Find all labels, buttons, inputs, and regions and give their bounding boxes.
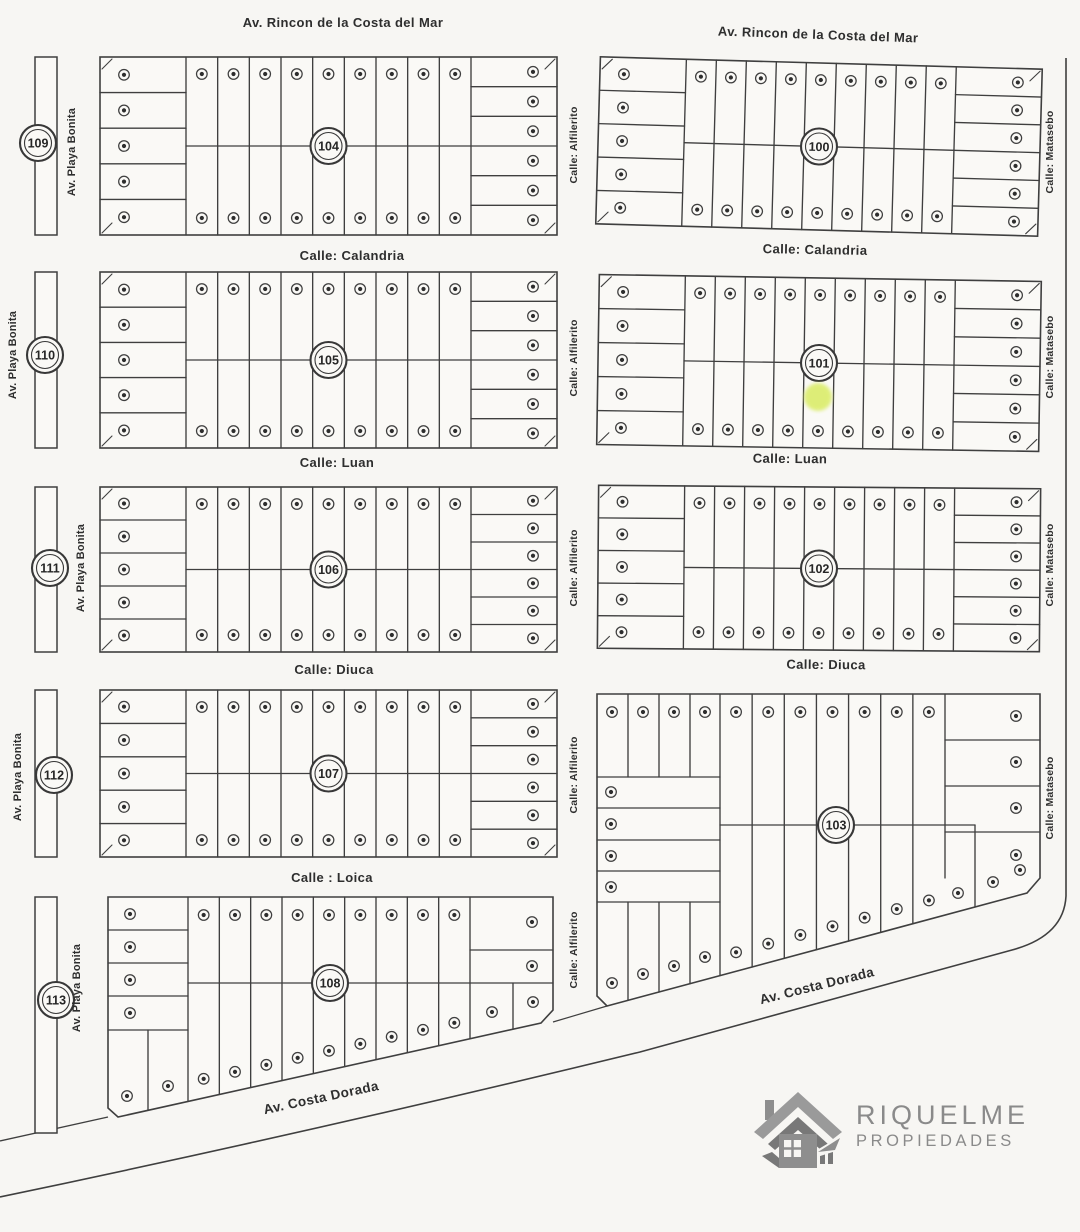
lot-marker-dot: [122, 180, 126, 184]
block-103: 103: [597, 694, 1040, 1006]
lot-marker-dot: [734, 710, 738, 714]
lot-marker-dot: [609, 822, 613, 826]
highlighted-lot: [804, 383, 832, 411]
house-icon: [752, 1080, 844, 1172]
lot-marker-dot: [122, 323, 126, 327]
lot-marker-dot: [296, 1056, 300, 1060]
lot-marker-dot: [122, 771, 126, 775]
lot-marker-dot: [531, 402, 535, 406]
lot-marker-dot: [231, 838, 235, 842]
street-label-luan-right: Calle: Luan: [753, 451, 828, 467]
lot-marker-dot: [200, 705, 204, 709]
lot-marker-dot: [233, 1070, 237, 1074]
plat-map-page: 1091101111121131041051061071001011021081…: [0, 0, 1080, 1232]
lot-marker-dot: [1014, 714, 1018, 718]
block-number: 101: [808, 356, 829, 370]
lot-marker-dot: [734, 950, 738, 954]
lot-marker-dot: [122, 534, 126, 538]
lot-marker-dot: [295, 72, 299, 76]
lot-marker-dot: [703, 955, 707, 959]
lot-marker-dot: [453, 287, 457, 291]
lot-marker-dot: [697, 501, 701, 505]
block-outline: [597, 694, 1040, 1006]
lot-marker-dot: [531, 314, 535, 318]
lot-marker-dot: [609, 854, 613, 858]
lot-marker-dot: [787, 502, 791, 506]
lot-marker-dot: [327, 1049, 331, 1053]
lot-marker-dot: [453, 502, 457, 506]
lot-marker-dot: [264, 1063, 268, 1067]
lot-marker-dot: [756, 630, 760, 634]
lot-marker-dot: [390, 705, 394, 709]
lot-marker-dot: [122, 805, 126, 809]
street-label-luan-left: Calle: Luan: [300, 455, 374, 470]
street-label-matasebo-1: Calle: Matasebo: [1044, 111, 1056, 194]
lot-line: [954, 542, 1040, 543]
strip-block-113: 113: [35, 897, 74, 1133]
lot-marker-dot: [390, 502, 394, 506]
street-label-alfilerito-4: Calle: Alfilerito: [568, 736, 580, 813]
lot-marker-dot: [295, 502, 299, 506]
strip-block-112: 112: [35, 690, 72, 857]
lot-marker-dot: [122, 215, 126, 219]
lot-marker-dot: [876, 631, 880, 635]
lot-marker-dot: [453, 429, 457, 433]
lot-marker-dot: [122, 73, 126, 77]
lot-marker-dot: [122, 838, 126, 842]
road-edge-inner-gap: [553, 1006, 607, 1022]
street-label-diuca-left: Calle: Diuca: [294, 662, 374, 677]
lot-marker-dot: [1014, 582, 1018, 586]
lot-marker-dot: [531, 841, 535, 845]
block-101: 101: [597, 275, 1042, 452]
lot-marker-dot: [927, 710, 931, 714]
lot-marker-dot: [358, 705, 362, 709]
block-number: 102: [809, 562, 830, 576]
lot-marker-dot: [726, 630, 730, 634]
lot-marker-dot: [263, 705, 267, 709]
lot-marker-dot: [200, 287, 204, 291]
lot-marker-dot: [122, 393, 126, 397]
lot-marker-dot: [531, 373, 535, 377]
lot-marker-dot: [326, 633, 330, 637]
lot-marker-dot: [390, 1035, 394, 1039]
street-label-alfilerito-1: Calle: Alfilerito: [568, 106, 580, 183]
lot-marker-dot: [609, 790, 613, 794]
lot-marker-dot: [327, 913, 331, 917]
lot-marker-dot: [620, 565, 624, 569]
lot-marker-dot: [531, 343, 535, 347]
lot-marker-dot: [295, 287, 299, 291]
lot-marker-dot: [200, 502, 204, 506]
lot-marker-dot: [390, 838, 394, 842]
lot-marker-dot: [531, 702, 535, 706]
lot-marker-dot: [122, 428, 126, 432]
street-label-playa-bonita-2: Av. Playa Bonita: [7, 310, 19, 399]
lot-marker-dot: [877, 502, 881, 506]
lot-marker-dot: [326, 705, 330, 709]
lot-marker-dot: [202, 1077, 206, 1081]
lot-line: [598, 518, 684, 519]
lot-marker-dot: [128, 1011, 132, 1015]
lot-marker-dot: [531, 99, 535, 103]
lot-line: [954, 624, 1040, 625]
lot-marker-dot: [490, 1010, 494, 1014]
lot-marker-dot: [358, 838, 362, 842]
lot-marker-dot: [295, 216, 299, 220]
street-label-matasebo-4: Calle: Matasebo: [1044, 757, 1056, 840]
lot-marker-dot: [122, 705, 126, 709]
block-108: 108: [108, 897, 553, 1117]
block-number: 107: [318, 767, 339, 781]
block-number: 109: [28, 137, 49, 151]
block-number: 103: [826, 819, 847, 833]
lot-marker-dot: [798, 710, 802, 714]
lot-marker-dot: [421, 429, 425, 433]
lot-marker-dot: [672, 964, 676, 968]
street-label-costa-dorada-left: Av. Costa Dorada: [262, 1078, 380, 1117]
lot-marker-dot: [263, 429, 267, 433]
lot-marker-dot: [530, 964, 534, 968]
lot-marker-dot: [727, 501, 731, 505]
lot-marker-dot: [122, 567, 126, 571]
lot-marker-dot: [263, 287, 267, 291]
lot-marker-dot: [757, 501, 761, 505]
lot-marker-dot: [830, 710, 834, 714]
street-label-alfilerito-2: Calle: Alfilerito: [568, 319, 580, 396]
lot-marker-dot: [830, 924, 834, 928]
lot-marker-dot: [295, 633, 299, 637]
lot-marker-dot: [200, 633, 204, 637]
lot-marker-dot: [766, 942, 770, 946]
lot-marker-dot: [390, 429, 394, 433]
lot-marker-dot: [453, 633, 457, 637]
lot-marker-dot: [421, 502, 425, 506]
lot-marker-dot: [122, 633, 126, 637]
lot-marker-dot: [672, 710, 676, 714]
lot-marker-dot: [390, 913, 394, 917]
lot-marker-dot: [531, 188, 535, 192]
lot-marker-dot: [452, 1021, 456, 1025]
lot-marker-dot: [390, 72, 394, 76]
lot-marker-dot: [641, 710, 645, 714]
street-label-playa-bonita-5: Av. Playa Bonita: [71, 943, 83, 1032]
street-label-matasebo-2: Calle: Matasebo: [1044, 316, 1056, 399]
street-label-alfilerito-3: Calle: Alfilerito: [568, 529, 580, 606]
lot-marker-dot: [231, 429, 235, 433]
strip-block-110: 110: [27, 272, 63, 448]
lot-marker-dot: [231, 216, 235, 220]
lot-marker-dot: [231, 72, 235, 76]
lot-marker-dot: [798, 933, 802, 937]
lot-marker-dot: [390, 216, 394, 220]
lot-marker-dot: [530, 920, 534, 924]
street-label-playa-bonita-1: Av. Playa Bonita: [66, 107, 78, 196]
lot-marker-dot: [531, 218, 535, 222]
lot-marker-dot: [326, 429, 330, 433]
block-106: 106: [100, 487, 557, 652]
logo-name: RIQUELME: [856, 1101, 1029, 1129]
street-label-playa-bonita-4: Av. Playa Bonita: [12, 732, 24, 821]
block-105: 105: [100, 272, 557, 448]
lot-marker-dot: [421, 287, 425, 291]
lot-marker-dot: [128, 945, 132, 949]
street-label-playa-bonita-3: Av. Playa Bonita: [75, 523, 87, 612]
lot-line: [598, 550, 684, 551]
lot-marker-dot: [846, 631, 850, 635]
lot-marker-dot: [907, 503, 911, 507]
lot-marker-dot: [531, 813, 535, 817]
lot-marker-dot: [421, 216, 425, 220]
block-107: 107: [100, 690, 557, 857]
street-label-calandria-right: Calle: Calandria: [763, 241, 868, 258]
lot-marker-dot: [200, 838, 204, 842]
lot-marker-dot: [991, 880, 995, 884]
block-number: 104: [318, 140, 339, 154]
lot-marker-dot: [936, 632, 940, 636]
lot-marker-dot: [326, 216, 330, 220]
lot-marker-dot: [531, 581, 535, 585]
street-label-rincon-right: Av. Rincon de la Costa del Mar: [718, 24, 919, 46]
logo-tagline: PROPIEDADES: [856, 1133, 1029, 1150]
lot-marker-dot: [531, 730, 535, 734]
lot-marker-dot: [531, 609, 535, 613]
lot-marker-dot: [421, 705, 425, 709]
lot-marker-dot: [453, 72, 457, 76]
lot-marker-dot: [326, 287, 330, 291]
lot-marker-dot: [421, 633, 425, 637]
lot-marker-dot: [847, 502, 851, 506]
lot-marker-dot: [358, 913, 362, 917]
lot-marker-dot: [620, 597, 624, 601]
lot-marker-dot: [263, 502, 267, 506]
lot-marker-dot: [863, 916, 867, 920]
lot-marker-dot: [531, 785, 535, 789]
lot-line: [954, 515, 1040, 516]
lot-marker-dot: [200, 216, 204, 220]
lot-marker-dot: [200, 429, 204, 433]
lot-marker-dot: [166, 1084, 170, 1088]
lot-marker-dot: [358, 429, 362, 433]
lot-marker-dot: [421, 72, 425, 76]
lot-marker-dot: [358, 72, 362, 76]
strip-block-109: 109: [20, 57, 57, 235]
lot-marker-dot: [453, 705, 457, 709]
lot-marker-dot: [937, 503, 941, 507]
lot-marker-dot: [1014, 853, 1018, 857]
lot-marker-dot: [641, 972, 645, 976]
lot-marker-dot: [531, 636, 535, 640]
lot-marker-dot: [863, 710, 867, 714]
lot-marker-dot: [1014, 527, 1018, 531]
lot-marker-dot: [531, 431, 535, 435]
lot-marker-dot: [531, 129, 535, 133]
lot-marker-dot: [390, 633, 394, 637]
lot-line: [954, 597, 1040, 598]
lot-marker-dot: [531, 526, 535, 530]
street-label-rincon-left: Av. Rincon de la Costa del Mar: [243, 15, 444, 30]
lot-marker-dot: [122, 288, 126, 292]
lot-marker-dot: [956, 891, 960, 895]
lot-marker-dot: [1014, 500, 1018, 504]
street-label-matasebo-3: Calle: Matasebo: [1044, 524, 1056, 607]
block-104: 104: [100, 57, 557, 235]
riquelme-logo: RIQUELME PROPIEDADES: [752, 1078, 1042, 1173]
lot-marker-dot: [1018, 868, 1022, 872]
block-102: 102: [597, 485, 1040, 651]
street-label-diuca-right: Calle: Diuca: [786, 657, 866, 673]
lot-marker-dot: [125, 1094, 129, 1098]
block-number: 100: [808, 140, 829, 155]
lot-marker-dot: [1014, 554, 1018, 558]
lot-marker-dot: [531, 757, 535, 761]
block-number: 105: [318, 354, 339, 368]
lot-marker-dot: [786, 631, 790, 635]
lot-marker-dot: [358, 216, 362, 220]
lot-marker-dot: [766, 710, 770, 714]
lot-marker-dot: [620, 500, 624, 504]
lot-marker-dot: [263, 633, 267, 637]
lot-marker-dot: [906, 632, 910, 636]
lot-marker-dot: [296, 913, 300, 917]
lot-marker-dot: [295, 705, 299, 709]
lot-marker-dot: [696, 630, 700, 634]
lot-marker-dot: [1013, 636, 1017, 640]
lot-marker-dot: [122, 358, 126, 362]
block-number: 111: [40, 562, 60, 576]
lot-marker-dot: [231, 502, 235, 506]
block-number: 112: [44, 769, 64, 783]
lot-marker-dot: [895, 907, 899, 911]
lot-marker-dot: [233, 913, 237, 917]
lot-marker-dot: [421, 838, 425, 842]
lot-marker-dot: [326, 838, 330, 842]
lot-marker-dot: [531, 554, 535, 558]
lot-marker-dot: [927, 898, 931, 902]
block-number: 113: [46, 994, 66, 1008]
lot-line: [954, 570, 1040, 571]
street-label-costa-dorada-right: Av. Costa Dorada: [758, 964, 876, 1007]
lot-marker-dot: [263, 72, 267, 76]
lot-marker-dot: [453, 838, 457, 842]
lot-marker-dot: [231, 633, 235, 637]
lot-marker-dot: [358, 1042, 362, 1046]
lot-marker-dot: [122, 501, 126, 505]
lot-marker-dot: [531, 1000, 535, 1004]
lot-marker-dot: [610, 710, 614, 714]
lot-marker-dot: [531, 159, 535, 163]
lot-marker-dot: [452, 913, 456, 917]
block-number: 106: [318, 563, 339, 577]
lot-marker-dot: [231, 705, 235, 709]
lot-marker-dot: [390, 287, 394, 291]
street-label-alfilerito-5: Calle: Alfilerito: [568, 911, 580, 988]
lot-marker-dot: [1014, 760, 1018, 764]
lot-marker-dot: [610, 981, 614, 985]
street-label-calandria-left: Calle: Calandria: [300, 248, 405, 263]
lot-marker-dot: [531, 70, 535, 74]
lot-marker-dot: [421, 1028, 425, 1032]
lot-marker-dot: [326, 502, 330, 506]
lot-marker-dot: [264, 913, 268, 917]
lot-marker-dot: [263, 216, 267, 220]
strip-block-111: 111: [32, 487, 68, 652]
lot-marker-dot: [895, 710, 899, 714]
lot-marker-dot: [128, 978, 132, 982]
lot-marker-dot: [619, 630, 623, 634]
lot-line: [598, 583, 684, 584]
street-label-loica: Calle : Loica: [291, 870, 373, 885]
lot-marker-dot: [1014, 609, 1018, 613]
lot-marker-dot: [703, 710, 707, 714]
subdivision-plat-map: 1091101111121131041051061071001011021081…: [0, 0, 1080, 1232]
lot-marker-dot: [122, 600, 126, 604]
lot-marker-dot: [358, 633, 362, 637]
lot-marker-dot: [1014, 806, 1018, 810]
lot-marker-dot: [122, 144, 126, 148]
lot-marker-dot: [128, 912, 132, 916]
lot-marker-dot: [421, 913, 425, 917]
lot-marker-dot: [609, 885, 613, 889]
block-100: 100: [596, 57, 1042, 236]
lot-marker-dot: [295, 838, 299, 842]
lot-marker-dot: [620, 532, 624, 536]
block-number: 108: [320, 977, 341, 991]
lot-marker-dot: [326, 72, 330, 76]
lot-marker-dot: [263, 838, 267, 842]
block-number: 110: [35, 349, 55, 363]
lot-marker-dot: [295, 429, 299, 433]
lot-marker-dot: [358, 287, 362, 291]
lot-marker-dot: [358, 502, 362, 506]
lot-marker-dot: [453, 216, 457, 220]
lot-marker-dot: [816, 631, 820, 635]
lot-line: [598, 616, 684, 617]
lot-marker-dot: [122, 108, 126, 112]
lot-marker-dot: [531, 499, 535, 503]
lot-marker-dot: [200, 72, 204, 76]
lot-marker-dot: [817, 502, 821, 506]
lot-marker-dot: [122, 738, 126, 742]
lot-marker-dot: [231, 287, 235, 291]
lot-marker-dot: [202, 913, 206, 917]
lot-marker-dot: [531, 285, 535, 289]
